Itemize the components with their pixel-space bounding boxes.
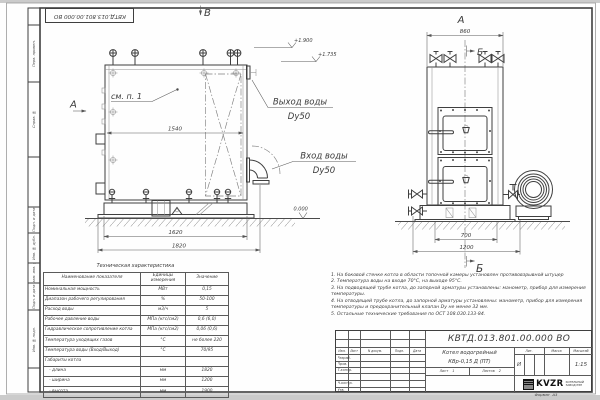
format-note: Формат А3 <box>500 392 592 397</box>
title-block: КВТД.013.801.00.000 ВО Изм. Лист N докум… <box>335 330 592 392</box>
company-name: КОТЕЛЬНЫЙ ЗАВОД РЭП <box>566 381 584 387</box>
front-top-valves <box>430 52 504 68</box>
note-5: 5. Остальные технические требования по О… <box>331 312 592 318</box>
frame-label-podp-data-2: Подп. и дата <box>28 283 40 310</box>
frame-label-sprav: Справ. № <box>28 82 40 157</box>
section-b-top-label: Б <box>477 48 483 58</box>
scale-header: Масштаб <box>569 347 593 354</box>
table-row: Габариты котла <box>44 356 229 366</box>
company-name-line2: ЗАВОД РЭП <box>566 384 584 387</box>
mass-header: Масса <box>544 347 569 354</box>
tech-header-row: Наименование показателя Единицы измерени… <box>44 272 229 285</box>
inverted-code-stamp: КВТД.013.801.00.000 ВО <box>45 8 134 23</box>
tech-header-units: Единицы измерения <box>141 272 186 285</box>
table-row: Диапазон рабочего регулирования%50-100 <box>44 295 229 305</box>
sheet-value: 1 <box>452 369 454 373</box>
table-row: Гидравлическое сопротивление котлаМПа (к… <box>44 326 229 336</box>
notes-block: 1. На боковой стенке котла в области топ… <box>331 273 592 319</box>
frame-label-podp-data-1: Подп. и дата <box>28 207 40 233</box>
sheets-cell: Листов 2 <box>469 367 514 375</box>
company-logo-icon <box>523 379 534 390</box>
outlet-label: Выход воды <box>273 98 327 108</box>
door-latch-icon <box>463 128 469 133</box>
level-marks <box>254 43 320 219</box>
base-frame <box>98 201 254 219</box>
fan-valve <box>503 185 520 199</box>
role-utv: Утв. <box>338 387 361 394</box>
scale-value: 1:15 <box>569 354 593 375</box>
sheets-label: Листов <box>482 369 495 373</box>
level-top-label: +1.900 <box>294 38 313 44</box>
drawing-sheet: В А см. п. 1 1540 1620 1820 Выход воды D… <box>0 0 600 400</box>
dim-700: 700 <box>461 233 472 239</box>
company-logo-text: KVZR <box>536 379 563 389</box>
col-izm: Изм. <box>336 347 348 354</box>
table-row: Номинальная мощностьМВт0,15 <box>44 285 229 295</box>
inlet-elbow <box>247 146 281 184</box>
outlet-size: Dy50 <box>288 112 310 122</box>
lit-value: И <box>514 354 524 375</box>
format-label: Формат <box>535 392 550 397</box>
inverted-code-text: КВТД.013.801.00.000 ВО <box>54 13 126 19</box>
tech-header-value: Значение <box>186 272 229 285</box>
table-row: Температура уходящих газов°Сне более 220 <box>44 336 229 346</box>
role-razrab: Разраб. <box>338 354 361 361</box>
tech-table-title: Техническая характеристика <box>43 263 228 269</box>
dim-1540: 1540 <box>168 127 182 133</box>
frame-label-vzam-inv: Взам. инв. № <box>28 263 40 283</box>
sheets-value: 2 <box>499 369 501 373</box>
role-tkontr: Т.контр. <box>338 367 361 373</box>
sheet-label: Лист <box>440 369 449 373</box>
top-valves <box>110 50 241 65</box>
right-view-label: А <box>457 15 465 26</box>
company-cell: KVZR КОТЕЛЬНЫЙ ЗАВОД РЭП <box>514 375 593 393</box>
tech-header-name: Наименование показателя <box>44 272 141 285</box>
note-2: 2. Температура воды на входе 70°С, на вы… <box>331 279 592 285</box>
note-4: 4. На отводящей трубе котла, до запорной… <box>331 299 592 311</box>
upper-door <box>429 108 493 155</box>
col-data: Дата <box>409 347 425 354</box>
fr ame-label-inv-dubl: Инв. № дубл. <box>28 233 40 263</box>
note-3: 3. На подводящей трубе котла, до запорно… <box>331 286 592 298</box>
inlet-label: Вход воды <box>300 152 348 162</box>
table-row: Расход водым3/ч5 <box>44 305 229 315</box>
dim-1200: 1200 <box>460 245 474 251</box>
tech-table: Наименование показателя Единицы измерени… <box>43 272 229 398</box>
frame-label-inv-podl: Инв. № подл. <box>28 310 40 368</box>
front-view <box>395 32 570 268</box>
see-ref-label: см. п. 1 <box>111 92 142 101</box>
table-row: - высотамм1900 <box>44 387 229 397</box>
view-a-arrow-label: А <box>69 100 77 111</box>
dim-860: 860 <box>460 29 471 35</box>
dim-1620: 1620 <box>169 230 183 236</box>
lower-door <box>429 158 493 206</box>
door-latch-icon <box>463 178 469 183</box>
col-podp: Подп. <box>390 347 409 354</box>
col-ndocum: N докум. <box>360 347 390 354</box>
note-1: 1. На боковой стенке котла в области топ… <box>331 273 592 279</box>
lit-header: Лит. <box>514 347 544 354</box>
level-zero-label: 0.000 <box>294 207 308 213</box>
frame-label-perv-primen: Перв. примен. <box>28 25 40 82</box>
outlet-flange <box>247 66 257 79</box>
dim-1820: 1820 <box>172 244 186 250</box>
view-b-label: В <box>204 8 211 19</box>
level-mid-label: +1.735 <box>318 52 337 58</box>
table-row: - ширинамм1200 <box>44 377 229 387</box>
sheet-cell: Лист 1 <box>425 367 469 375</box>
table-row: - длинамм1820 <box>44 367 229 377</box>
table-row: Температура воды (Вход/Выход)°С70/95 <box>44 346 229 356</box>
col-list: Лист <box>348 347 360 354</box>
product-name-line2: КВр-0,15 Д (ПТ) <box>425 357 514 366</box>
format-value: А3 <box>552 392 557 397</box>
table-row: Рабочее давление водыМПа (кгс/см2)0,6 (6… <box>44 316 229 326</box>
document-designation: КВТД.013.801.00.000 ВО <box>425 332 593 346</box>
inlet-size: Dy50 <box>313 166 335 176</box>
blower-fan <box>515 171 553 220</box>
side-view <box>73 6 356 254</box>
